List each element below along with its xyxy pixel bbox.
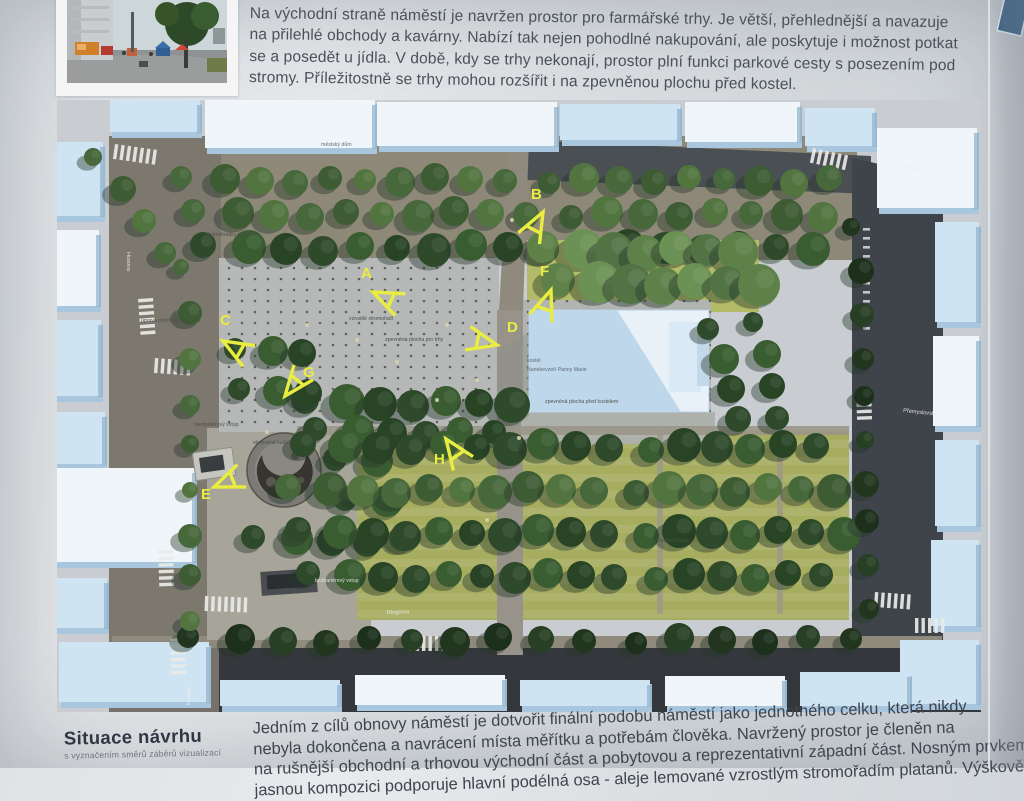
figure-title: Situace návrhu	[64, 724, 221, 749]
figure-subtitle: s vyznačením směrů záběrů vizualizací	[64, 747, 221, 760]
poster-photo: { "poster": { "top_paragraph_lines": [ "…	[0, 0, 1024, 768]
area-label: bezbariérový vstup	[315, 578, 359, 584]
view-marker-letter: A	[361, 265, 372, 282]
site-photo-thumbnail	[56, 0, 238, 96]
area-label: Nanebevzetí Panny Marie	[527, 367, 587, 373]
view-marker-letter: G	[303, 364, 315, 381]
top-paragraph: Na východní straně náměstí je navržen pr…	[249, 3, 966, 98]
area-label: pobytová louka	[655, 538, 690, 544]
area-label: zpevněná plocha před kostelem	[545, 399, 618, 405]
view-marker-letter: C	[220, 312, 231, 329]
view-marker-letter: E	[201, 486, 211, 503]
area-label: zpevněná plocha pro trhy	[385, 337, 444, 343]
figure-caption: Situace návrhu s vyznačením směrů záběrů…	[64, 724, 222, 760]
view-marker-letter: F	[540, 263, 549, 280]
street-label: Jodlova	[185, 686, 191, 706]
view-marker-letter: D	[507, 319, 518, 336]
view-marker-letter: H	[434, 451, 445, 468]
site-photo-content	[67, 0, 227, 83]
area-label: bezbariérový vstup	[195, 422, 239, 428]
view-marker-letter: B	[531, 186, 542, 203]
area-label: městský dům	[321, 141, 352, 148]
street-label: Riegrova	[387, 609, 410, 616]
poster-right-edge	[988, 0, 1024, 768]
site-plan-map: HusovaJodlovaRiegrovaPřemyslovskáLutovít…	[57, 100, 981, 712]
area-label: kostel	[527, 358, 541, 364]
area-label: úprava přechodu pro pěší	[141, 318, 201, 324]
area-label: vzrostlé stromořadí	[349, 316, 394, 322]
street-label: Husova	[125, 252, 131, 272]
area-label: předzahrádky kaváren	[205, 232, 256, 238]
area-label: obnovená kašna	[253, 440, 291, 446]
